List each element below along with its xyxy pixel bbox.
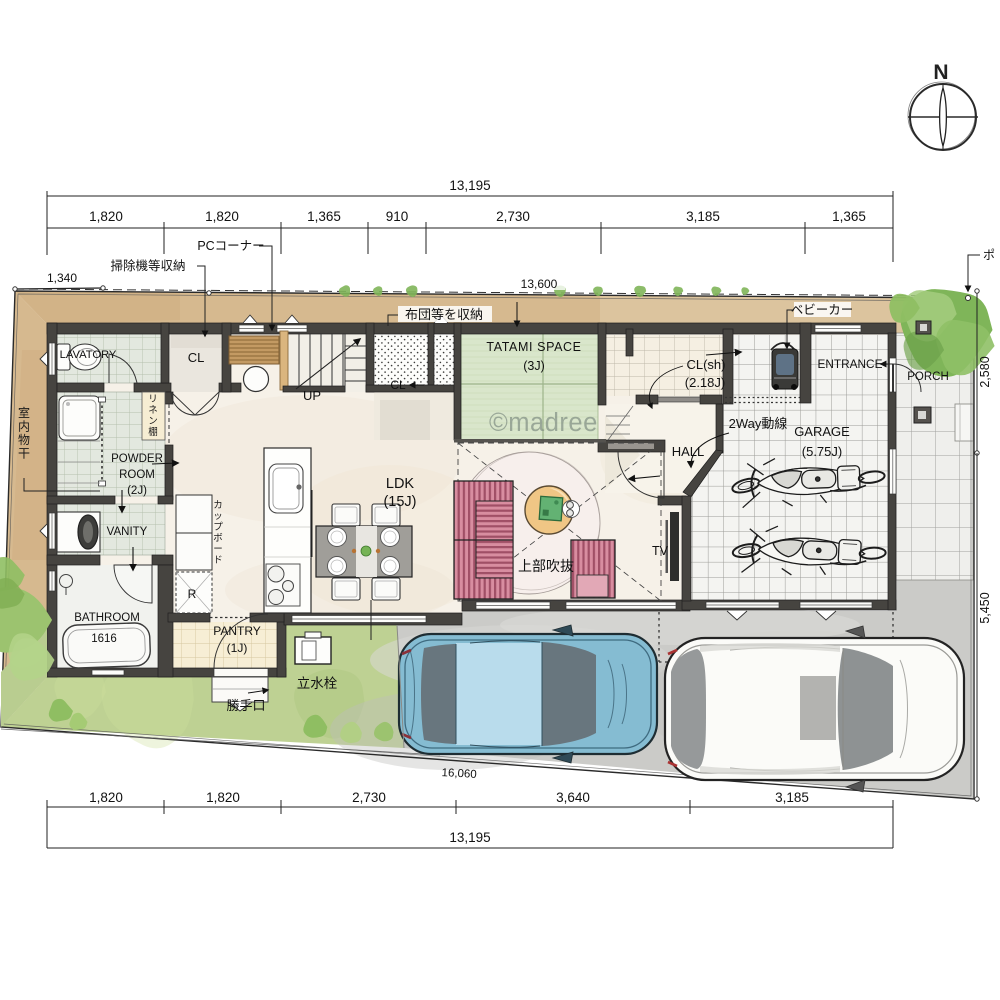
- svg-text:布団等を収納: 布団等を収納: [405, 307, 483, 322]
- svg-text:2Way動線: 2Way動線: [729, 416, 788, 431]
- svg-text:BATHROOM: BATHROOM: [74, 612, 140, 624]
- svg-text:上部吹抜: 上部吹抜: [518, 558, 574, 574]
- svg-text:©madree: ©madree: [489, 409, 598, 437]
- svg-text:1,340: 1,340: [47, 271, 77, 285]
- svg-text:TATAMI SPACE: TATAMI SPACE: [486, 340, 581, 354]
- svg-text:CL(sh): CL(sh): [686, 357, 725, 372]
- svg-text:ベビーカー: ベビーカー: [791, 303, 854, 317]
- svg-text:CL: CL: [188, 350, 205, 365]
- svg-text:HALL: HALL: [672, 444, 705, 459]
- svg-text:(5.75J): (5.75J): [802, 444, 842, 459]
- svg-text:POWDER: POWDER: [111, 453, 163, 465]
- svg-text:ENTRANCE: ENTRANCE: [818, 357, 883, 371]
- svg-text:1,820: 1,820: [89, 209, 123, 224]
- svg-text:室内物干: 室内物干: [18, 405, 30, 461]
- svg-text:13,195: 13,195: [449, 830, 490, 845]
- svg-text:3,185: 3,185: [686, 209, 720, 224]
- svg-text:1,820: 1,820: [205, 209, 239, 224]
- svg-text:1616: 1616: [91, 633, 117, 645]
- svg-text:1,820: 1,820: [89, 790, 123, 805]
- svg-text:(2J): (2J): [127, 485, 147, 497]
- svg-text:ROOM: ROOM: [119, 469, 155, 481]
- svg-text:5,450: 5,450: [978, 592, 992, 623]
- svg-text:(2.18J): (2.18J): [685, 375, 725, 390]
- svg-text:TV: TV: [652, 544, 669, 558]
- svg-text:PANTRY: PANTRY: [213, 624, 261, 638]
- svg-text:(1J): (1J): [227, 641, 248, 655]
- svg-text:2,730: 2,730: [496, 209, 530, 224]
- svg-text:2,580: 2,580: [978, 356, 992, 387]
- svg-text:立水栓: 立水栓: [297, 676, 338, 691]
- svg-text:16,060: 16,060: [441, 767, 477, 781]
- svg-text:1,365: 1,365: [832, 209, 866, 224]
- svg-text:リネン棚: リネン棚: [148, 394, 158, 438]
- svg-text:1,820: 1,820: [206, 790, 240, 805]
- svg-text:(3J): (3J): [523, 359, 545, 373]
- svg-text:3,640: 3,640: [556, 790, 590, 805]
- svg-text:N: N: [933, 61, 948, 84]
- svg-text:GARAGE: GARAGE: [794, 424, 850, 439]
- svg-text:13,600: 13,600: [521, 277, 558, 291]
- svg-text:VANITY: VANITY: [107, 526, 148, 538]
- svg-text:910: 910: [386, 209, 409, 224]
- svg-text:3,185: 3,185: [775, 790, 809, 805]
- svg-text:カップボード: カップボード: [213, 500, 223, 566]
- svg-text:ポ: ポ: [983, 248, 995, 262]
- svg-text:LAVATORY: LAVATORY: [60, 349, 117, 361]
- svg-text:PCコーナー: PCコーナー: [197, 239, 264, 253]
- svg-text:UP: UP: [303, 388, 321, 403]
- svg-text:LDK: LDK: [386, 476, 415, 492]
- svg-text:CL: CL: [390, 378, 406, 392]
- svg-text:13,195: 13,195: [449, 178, 490, 193]
- svg-text:掃除機等収納: 掃除機等収納: [110, 258, 185, 273]
- svg-text:PORCH: PORCH: [907, 371, 949, 383]
- svg-text:1,365: 1,365: [307, 209, 341, 224]
- svg-text:(15J): (15J): [383, 494, 416, 510]
- svg-text:勝手口: 勝手口: [226, 698, 265, 713]
- svg-text:2,730: 2,730: [352, 790, 386, 805]
- svg-text:R: R: [188, 587, 197, 601]
